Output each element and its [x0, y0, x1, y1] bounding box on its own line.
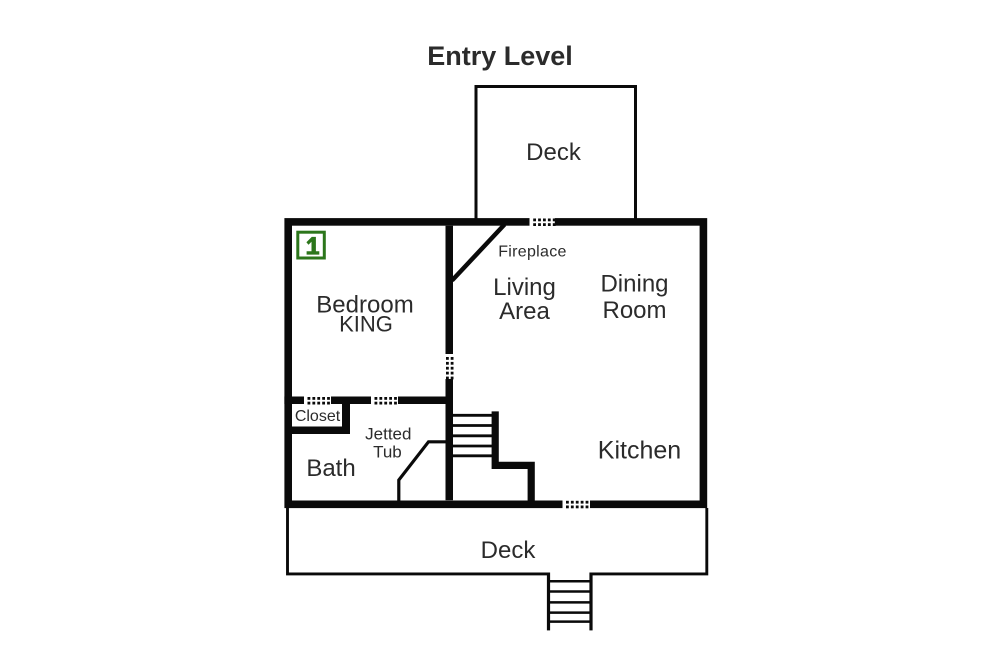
svg-text:Dining: Dining	[600, 271, 668, 298]
svg-text:KING: KING	[339, 312, 393, 337]
svg-text:Kitchen: Kitchen	[598, 436, 681, 464]
svg-text:Entry Level: Entry Level	[427, 41, 573, 71]
svg-text:Bath: Bath	[306, 455, 355, 482]
svg-text:Fireplace: Fireplace	[498, 244, 567, 261]
svg-text:Deck: Deck	[526, 139, 582, 166]
svg-text:Jetted: Jetted	[365, 424, 411, 443]
svg-text:Deck: Deck	[481, 537, 537, 564]
svg-text:Closet: Closet	[295, 408, 341, 425]
svg-text:Room: Room	[602, 297, 666, 324]
svg-text:Tub: Tub	[373, 443, 402, 462]
svg-text:Area: Area	[499, 298, 550, 325]
